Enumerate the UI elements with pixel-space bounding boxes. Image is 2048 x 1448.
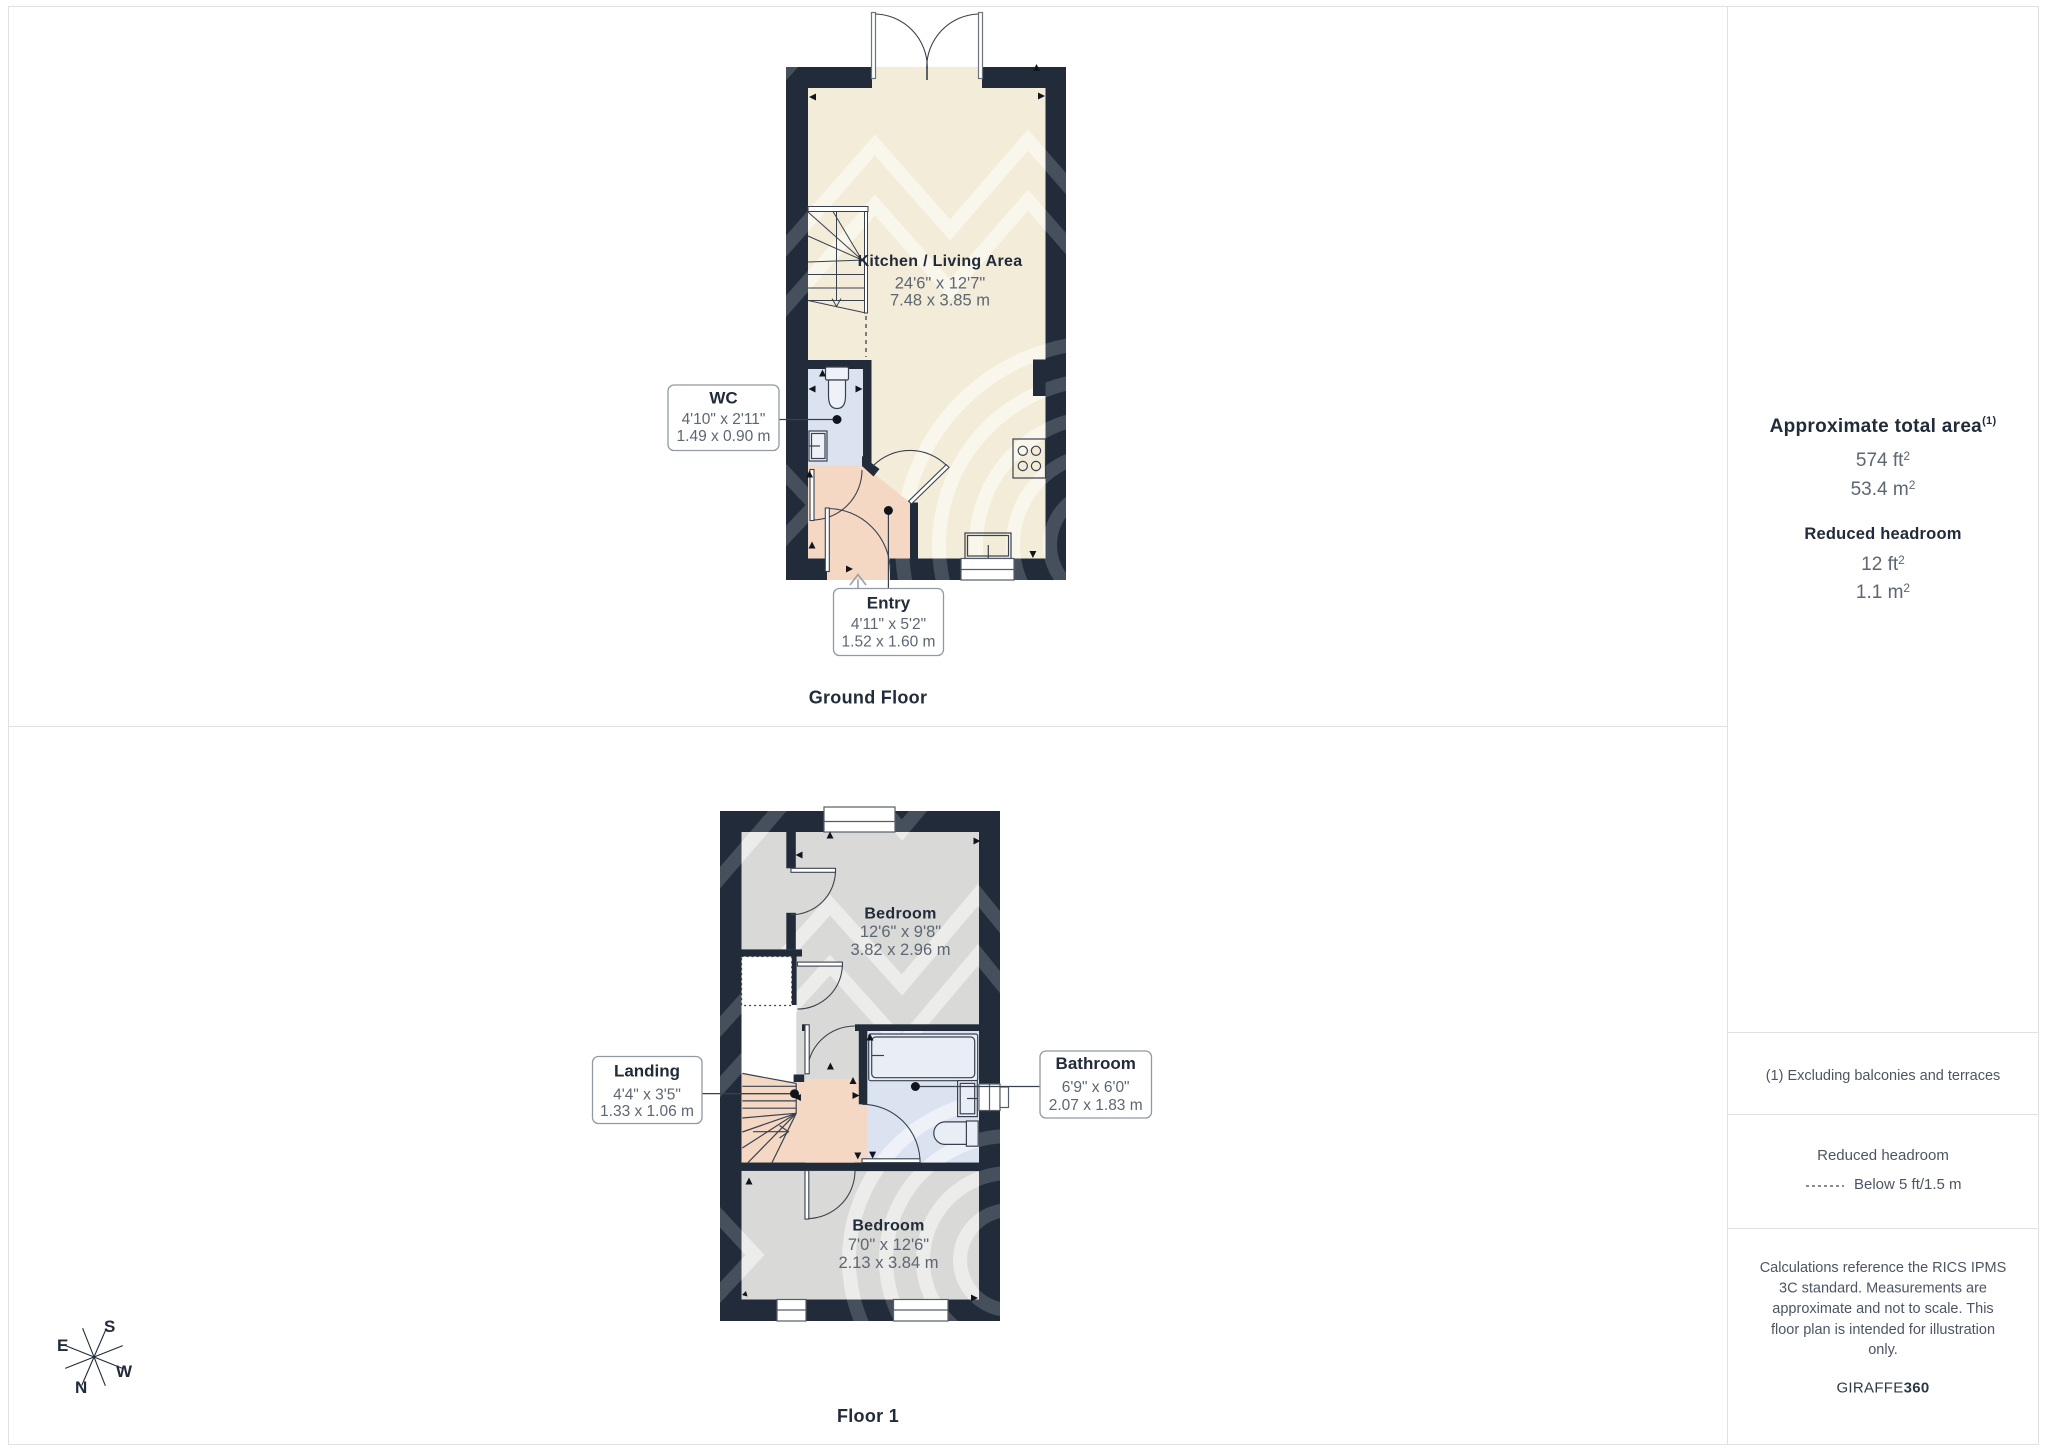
svg-text:1.33 x 1.06 m: 1.33 x 1.06 m xyxy=(600,1103,694,1120)
svg-text:Calculations reference the RIC: Calculations reference the RICS IPMS xyxy=(1760,1260,2007,1276)
svg-text:53.4 m2: 53.4 m2 xyxy=(1851,478,1916,500)
svg-text:Bedroom: Bedroom xyxy=(852,1217,924,1234)
svg-text:Approximate total area(1): Approximate total area(1) xyxy=(1770,415,1997,437)
svg-text:1.1 m2: 1.1 m2 xyxy=(1856,581,1911,603)
svg-text:W: W xyxy=(116,1362,133,1381)
svg-text:7'0" x 12'6": 7'0" x 12'6" xyxy=(848,1236,929,1254)
svg-text:Kitchen / Living Area: Kitchen / Living Area xyxy=(858,253,1023,270)
svg-text:Bathroom: Bathroom xyxy=(1056,1054,1136,1073)
svg-text:E: E xyxy=(57,1336,68,1355)
svg-text:574 ft2: 574 ft2 xyxy=(1856,449,1911,471)
svg-text:1.49 x 0.90 m: 1.49 x 0.90 m xyxy=(677,428,771,445)
svg-text:S: S xyxy=(104,1317,115,1336)
svg-text:Reduced headroom: Reduced headroom xyxy=(1817,1147,1949,1164)
svg-text:Landing: Landing xyxy=(614,1062,680,1081)
svg-text:3.82 x 2.96 m: 3.82 x 2.96 m xyxy=(851,941,951,959)
svg-text:N: N xyxy=(75,1378,87,1397)
svg-text:Reduced headroom: Reduced headroom xyxy=(1804,525,1961,543)
svg-text:7.48 x 3.85 m: 7.48 x 3.85 m xyxy=(890,292,990,310)
svg-text:floor plan is intended for ill: floor plan is intended for illustration xyxy=(1771,1322,1995,1338)
svg-text:4'4" x 3'5": 4'4" x 3'5" xyxy=(613,1087,681,1104)
svg-text:3C standard. Measurements are: 3C standard. Measurements are xyxy=(1779,1281,1987,1297)
svg-text:4'10" x 2'11": 4'10" x 2'11" xyxy=(682,411,766,428)
svg-text:Below 5 ft/1.5 m: Below 5 ft/1.5 m xyxy=(1854,1176,1962,1193)
svg-text:Ground Floor: Ground Floor xyxy=(809,688,928,708)
svg-text:WC: WC xyxy=(709,389,737,408)
svg-text:GIRAFFE360: GIRAFFE360 xyxy=(1836,1380,1929,1397)
svg-text:2.13 x 3.84 m: 2.13 x 3.84 m xyxy=(839,1254,939,1272)
svg-text:12'6" x 9'8": 12'6" x 9'8" xyxy=(860,923,941,941)
svg-text:4'11" x 5'2": 4'11" x 5'2" xyxy=(851,616,926,633)
svg-text:(1) Excluding balconies and te: (1) Excluding balconies and terraces xyxy=(1766,1068,2001,1084)
svg-text:Floor 1: Floor 1 xyxy=(837,1406,899,1426)
svg-text:2.07 x 1.83 m: 2.07 x 1.83 m xyxy=(1049,1097,1143,1114)
svg-text:24'6" x 12'7": 24'6" x 12'7" xyxy=(895,275,986,293)
svg-text:1.52 x 1.60 m: 1.52 x 1.60 m xyxy=(842,634,936,651)
svg-text:approximate and not to scale.: approximate and not to scale. This xyxy=(1772,1301,1993,1317)
svg-text:only.: only. xyxy=(1868,1342,1898,1358)
svg-text:Bedroom: Bedroom xyxy=(864,906,936,923)
svg-text:Entry: Entry xyxy=(867,594,911,613)
svg-text:6'9" x 6'0": 6'9" x 6'0" xyxy=(1062,1079,1130,1096)
